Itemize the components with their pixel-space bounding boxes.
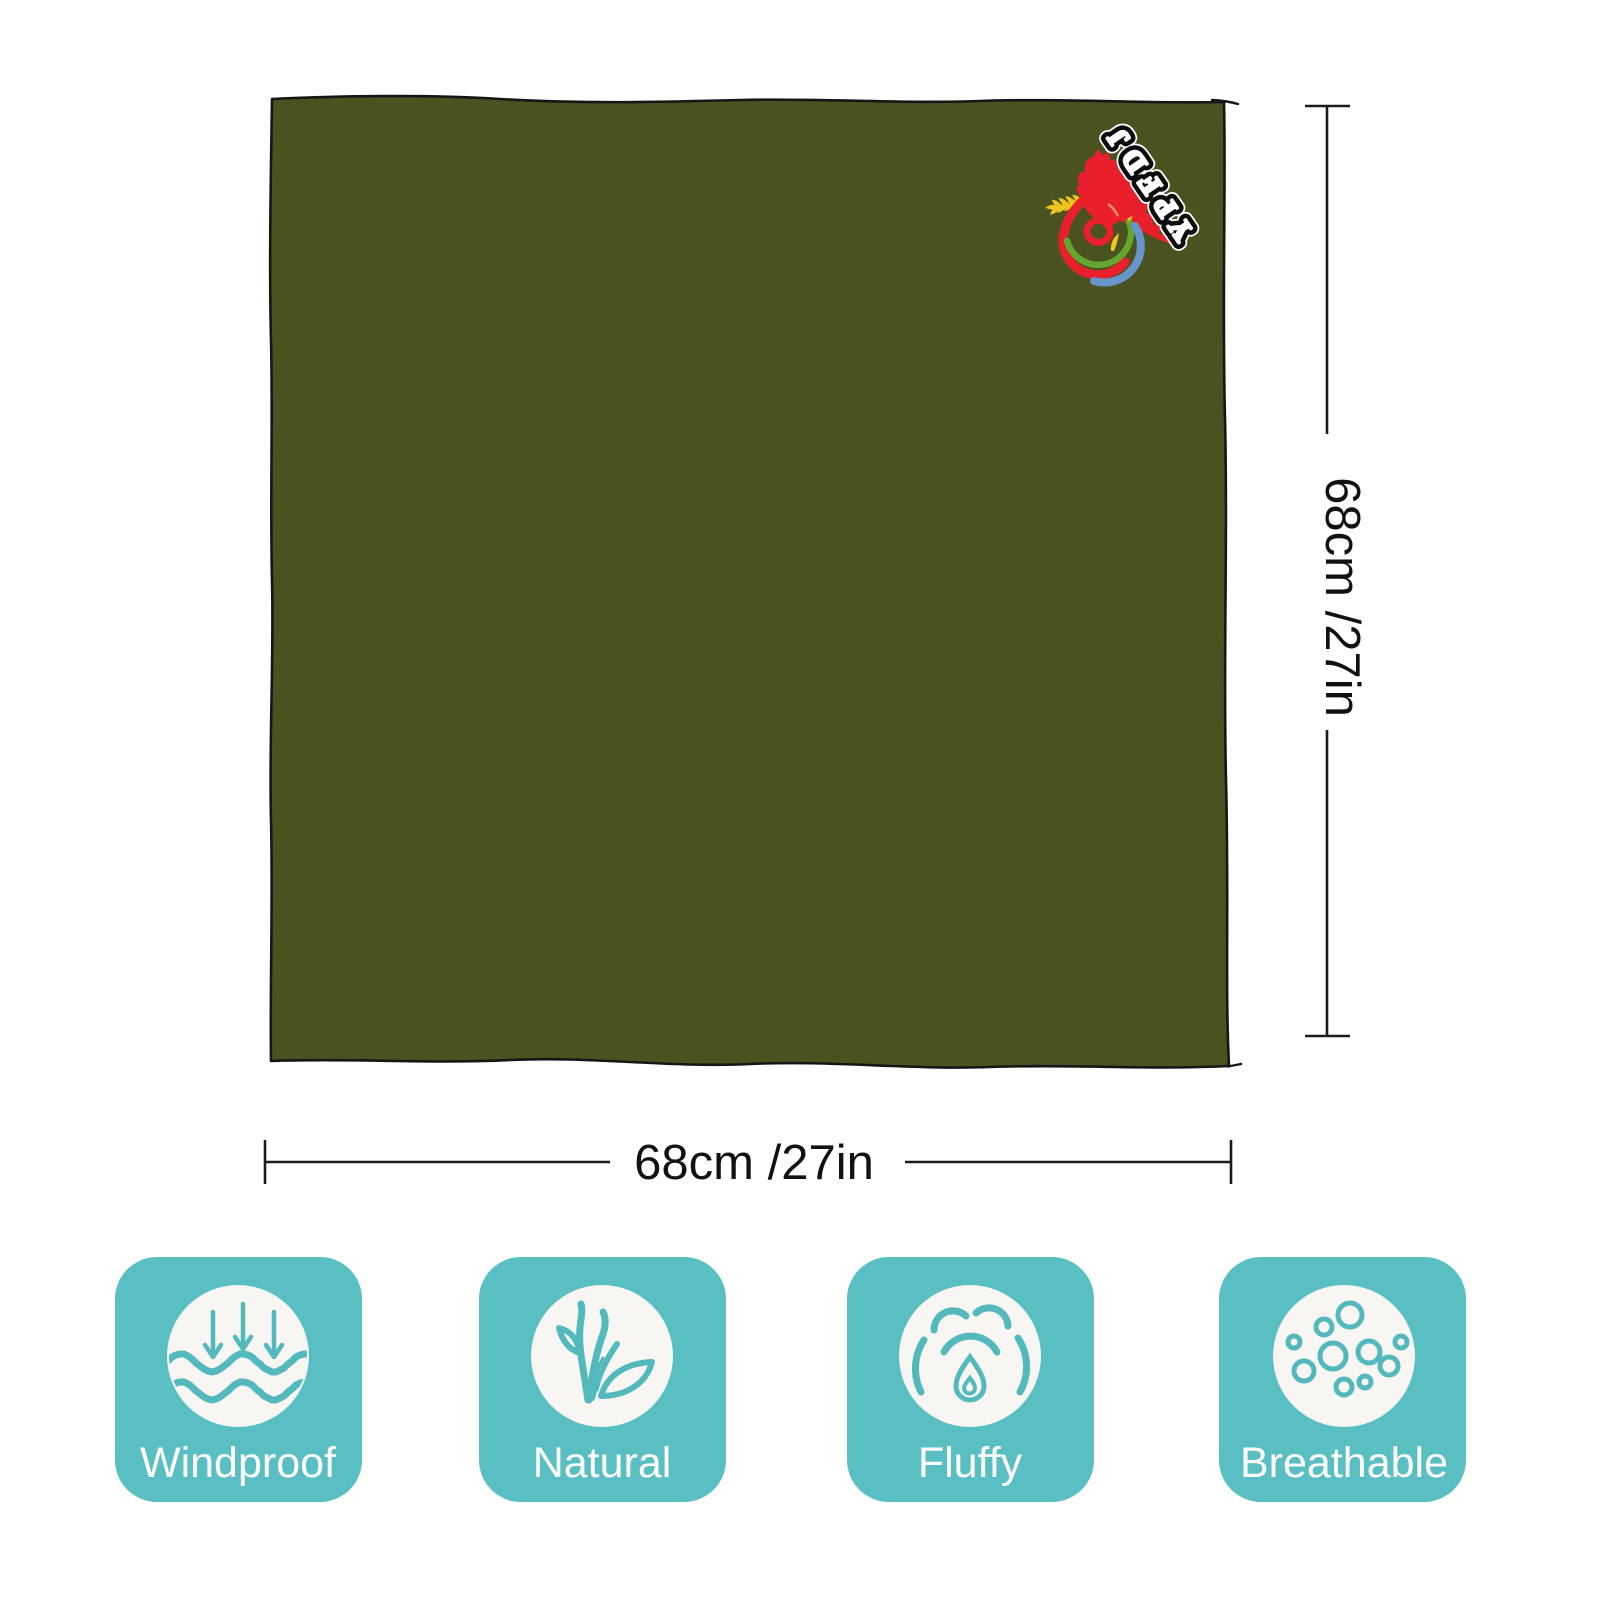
svg-text:Natural: Natural (533, 1439, 672, 1487)
svg-text:Breathable: Breathable (1240, 1439, 1448, 1487)
svg-text:Fluffy: Fluffy (918, 1439, 1023, 1487)
svg-text:Windproof: Windproof (140, 1439, 337, 1487)
svg-text:68cm /27in: 68cm /27in (634, 1136, 874, 1190)
svg-text:68cm /27in: 68cm /27in (1315, 477, 1369, 717)
